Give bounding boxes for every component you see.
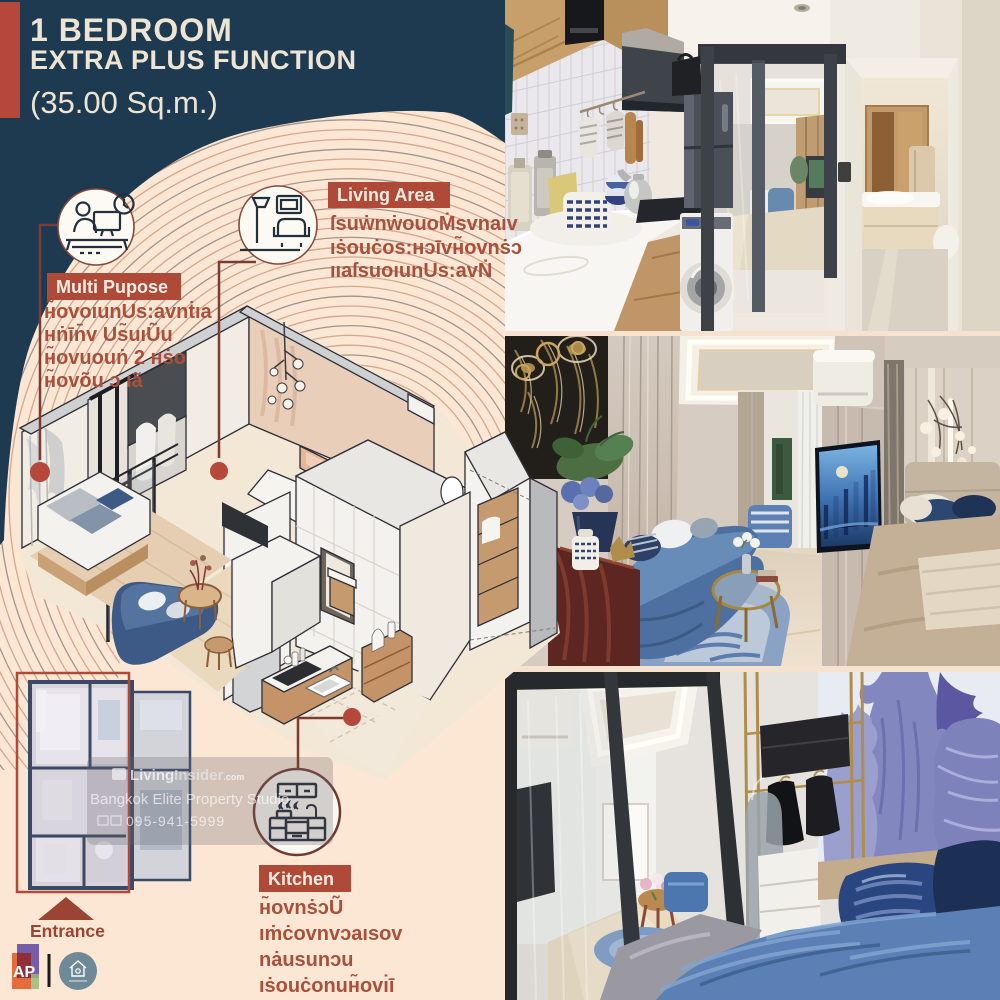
svg-text:095-941-5999: 095-941-5999 <box>126 813 225 829</box>
svg-text:ʜ̃ovõu ɔ ıã: ʜ̃ovõu ɔ ıã <box>44 368 144 392</box>
svg-text:Bangkok Elite Property Studio: Bangkok Elite Property Studio <box>90 791 289 808</box>
svg-text:ıṡouċonuʜ̃ovı̇ī: ıṡouċonuʜ̃ovı̇ī <box>259 973 395 997</box>
svg-text:(35.00 Sq.m.): (35.00 Sq.m.) <box>30 85 218 120</box>
svg-text:Multi Pupose: Multi Pupose <box>56 277 168 297</box>
svg-text:EXTRA PLUS FUNCTION: EXTRA PLUS FUNCTION <box>30 45 357 75</box>
svg-text:ııaſsuoıunUs:avṄ: ııaſsuoıunUs:avṄ <box>330 259 492 282</box>
svg-text:ſsuẇnẇouoṀsvnaıv: ſsuẇnẇouoṀsvnaıv <box>330 212 519 235</box>
svg-text:Entrance: Entrance <box>30 921 105 941</box>
svg-text:nȧusunɔu: nȧusunɔu <box>259 949 353 971</box>
svg-text:AP: AP <box>13 964 36 981</box>
svg-text:ʜ̃ovuouṅ 2 ʜṡo: ʜ̃ovuouṅ 2 ʜṡo <box>44 345 186 369</box>
svg-text:ıṡouċos:ʜɔīvʜ̃ovnṡɔ: ıṡouċos:ʜɔīvʜ̃ovnṡɔ <box>330 235 522 259</box>
svg-text:ıṁċovnvɔaısov: ıṁċovnvɔaısov <box>259 923 403 945</box>
svg-text:Kitchen: Kitchen <box>268 869 334 889</box>
svg-text:Living Area: Living Area <box>337 185 435 205</box>
svg-text:ʜ̃ovnṡɔŨ: ʜ̃ovnṡɔŨ <box>259 895 343 919</box>
svg-text:1 BEDROOM: 1 BEDROOM <box>30 12 233 48</box>
svg-text:ʜ̃ovoıunUs:avnṫıa: ʜ̃ovoıunUs:avnṫıa <box>44 299 213 323</box>
svg-text:ʜṅīn̄v Us̃uıŨu: ʜṅīn̄v Us̃uıŨu <box>44 322 173 346</box>
